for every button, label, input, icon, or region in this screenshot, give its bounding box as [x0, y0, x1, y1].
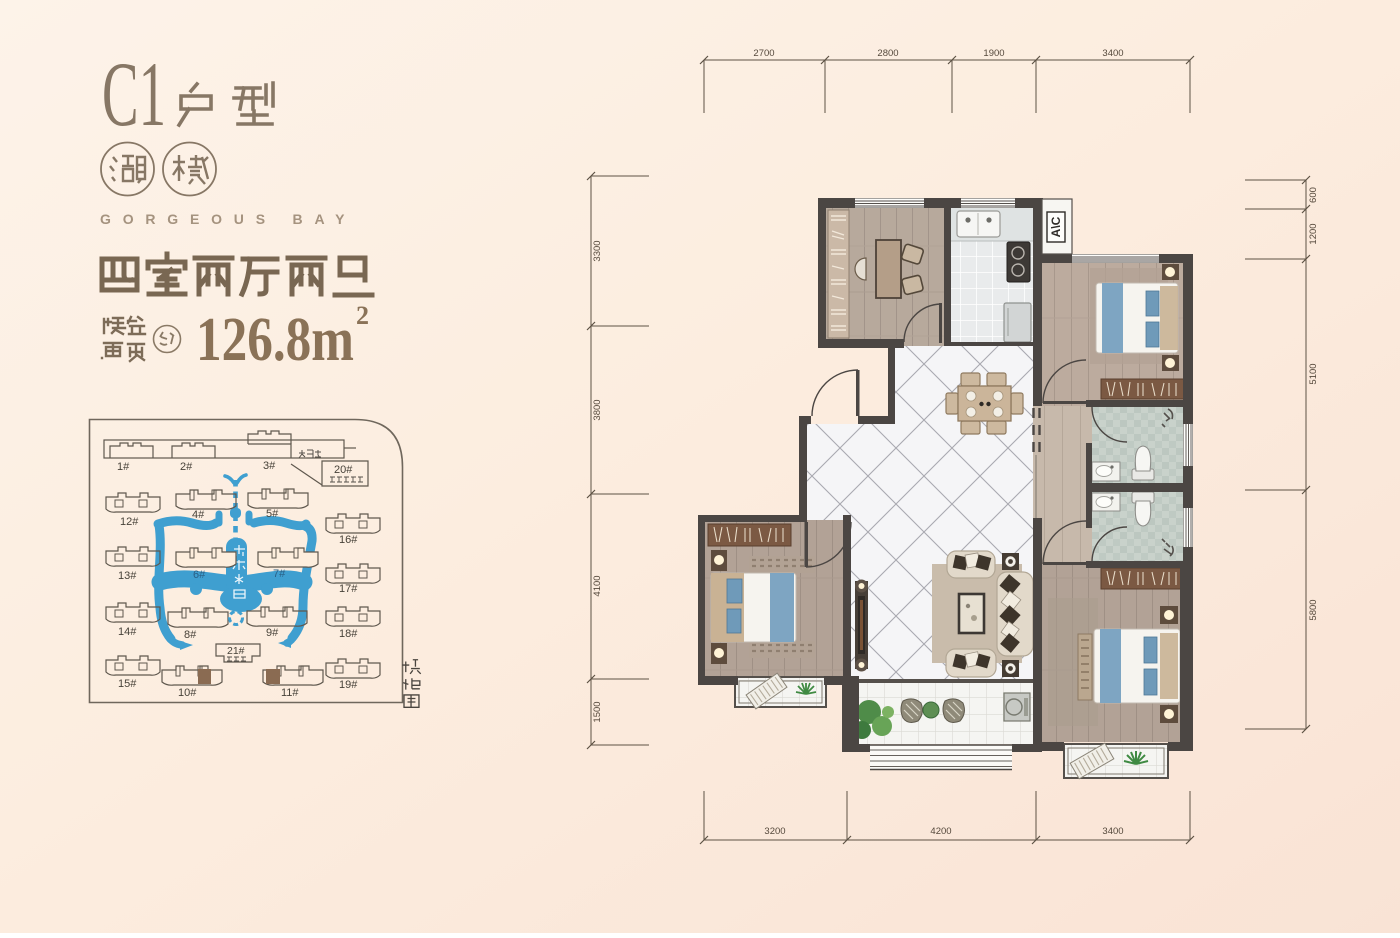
svg-text:4200: 4200	[930, 826, 951, 837]
svg-text:600: 600	[1308, 187, 1319, 203]
svg-text:GORGEOUS BAY: GORGEOUS BAY	[100, 211, 356, 227]
svg-text:13#: 13#	[118, 570, 137, 582]
svg-text:3300: 3300	[592, 240, 603, 261]
svg-text:4#: 4#	[192, 509, 205, 521]
svg-text:20#: 20#	[334, 464, 353, 476]
svg-text:1200: 1200	[1308, 223, 1319, 244]
svg-text:2800: 2800	[877, 48, 898, 59]
svg-text:1500: 1500	[592, 701, 603, 722]
svg-text:18#: 18#	[339, 628, 358, 640]
svg-text:17#: 17#	[339, 583, 358, 595]
svg-text:3800: 3800	[592, 399, 603, 420]
svg-text:11#: 11#	[281, 687, 299, 699]
svg-text:3400: 3400	[1102, 48, 1123, 59]
svg-text:10#: 10#	[178, 687, 197, 699]
svg-text:A\C: A\C	[1049, 216, 1063, 237]
svg-text:3400: 3400	[1102, 826, 1123, 837]
svg-text:8#: 8#	[184, 629, 197, 641]
svg-text:1900: 1900	[983, 48, 1004, 59]
svg-text:3#: 3#	[263, 460, 276, 472]
svg-text:14#: 14#	[118, 626, 137, 638]
svg-text:2700: 2700	[753, 48, 774, 59]
svg-text:5100: 5100	[1308, 363, 1319, 384]
svg-text:7#: 7#	[273, 568, 286, 580]
svg-text:2: 2	[356, 301, 369, 330]
svg-text:2#: 2#	[180, 461, 193, 473]
svg-text:4100: 4100	[592, 575, 603, 596]
svg-text:6#: 6#	[193, 569, 206, 581]
svg-text:15#: 15#	[118, 678, 137, 690]
svg-text:16#: 16#	[339, 534, 358, 546]
svg-text:3200: 3200	[764, 826, 785, 837]
svg-text:9#: 9#	[266, 627, 279, 639]
svg-text:12#: 12#	[120, 516, 139, 528]
svg-text:C1: C1	[102, 43, 166, 145]
svg-text:21#: 21#	[227, 645, 245, 657]
svg-text:1#: 1#	[117, 461, 130, 473]
svg-text:5#: 5#	[266, 508, 279, 520]
svg-text:126.8m: 126.8m	[196, 306, 354, 374]
svg-text:19#: 19#	[339, 679, 358, 691]
svg-text:5800: 5800	[1308, 599, 1319, 620]
